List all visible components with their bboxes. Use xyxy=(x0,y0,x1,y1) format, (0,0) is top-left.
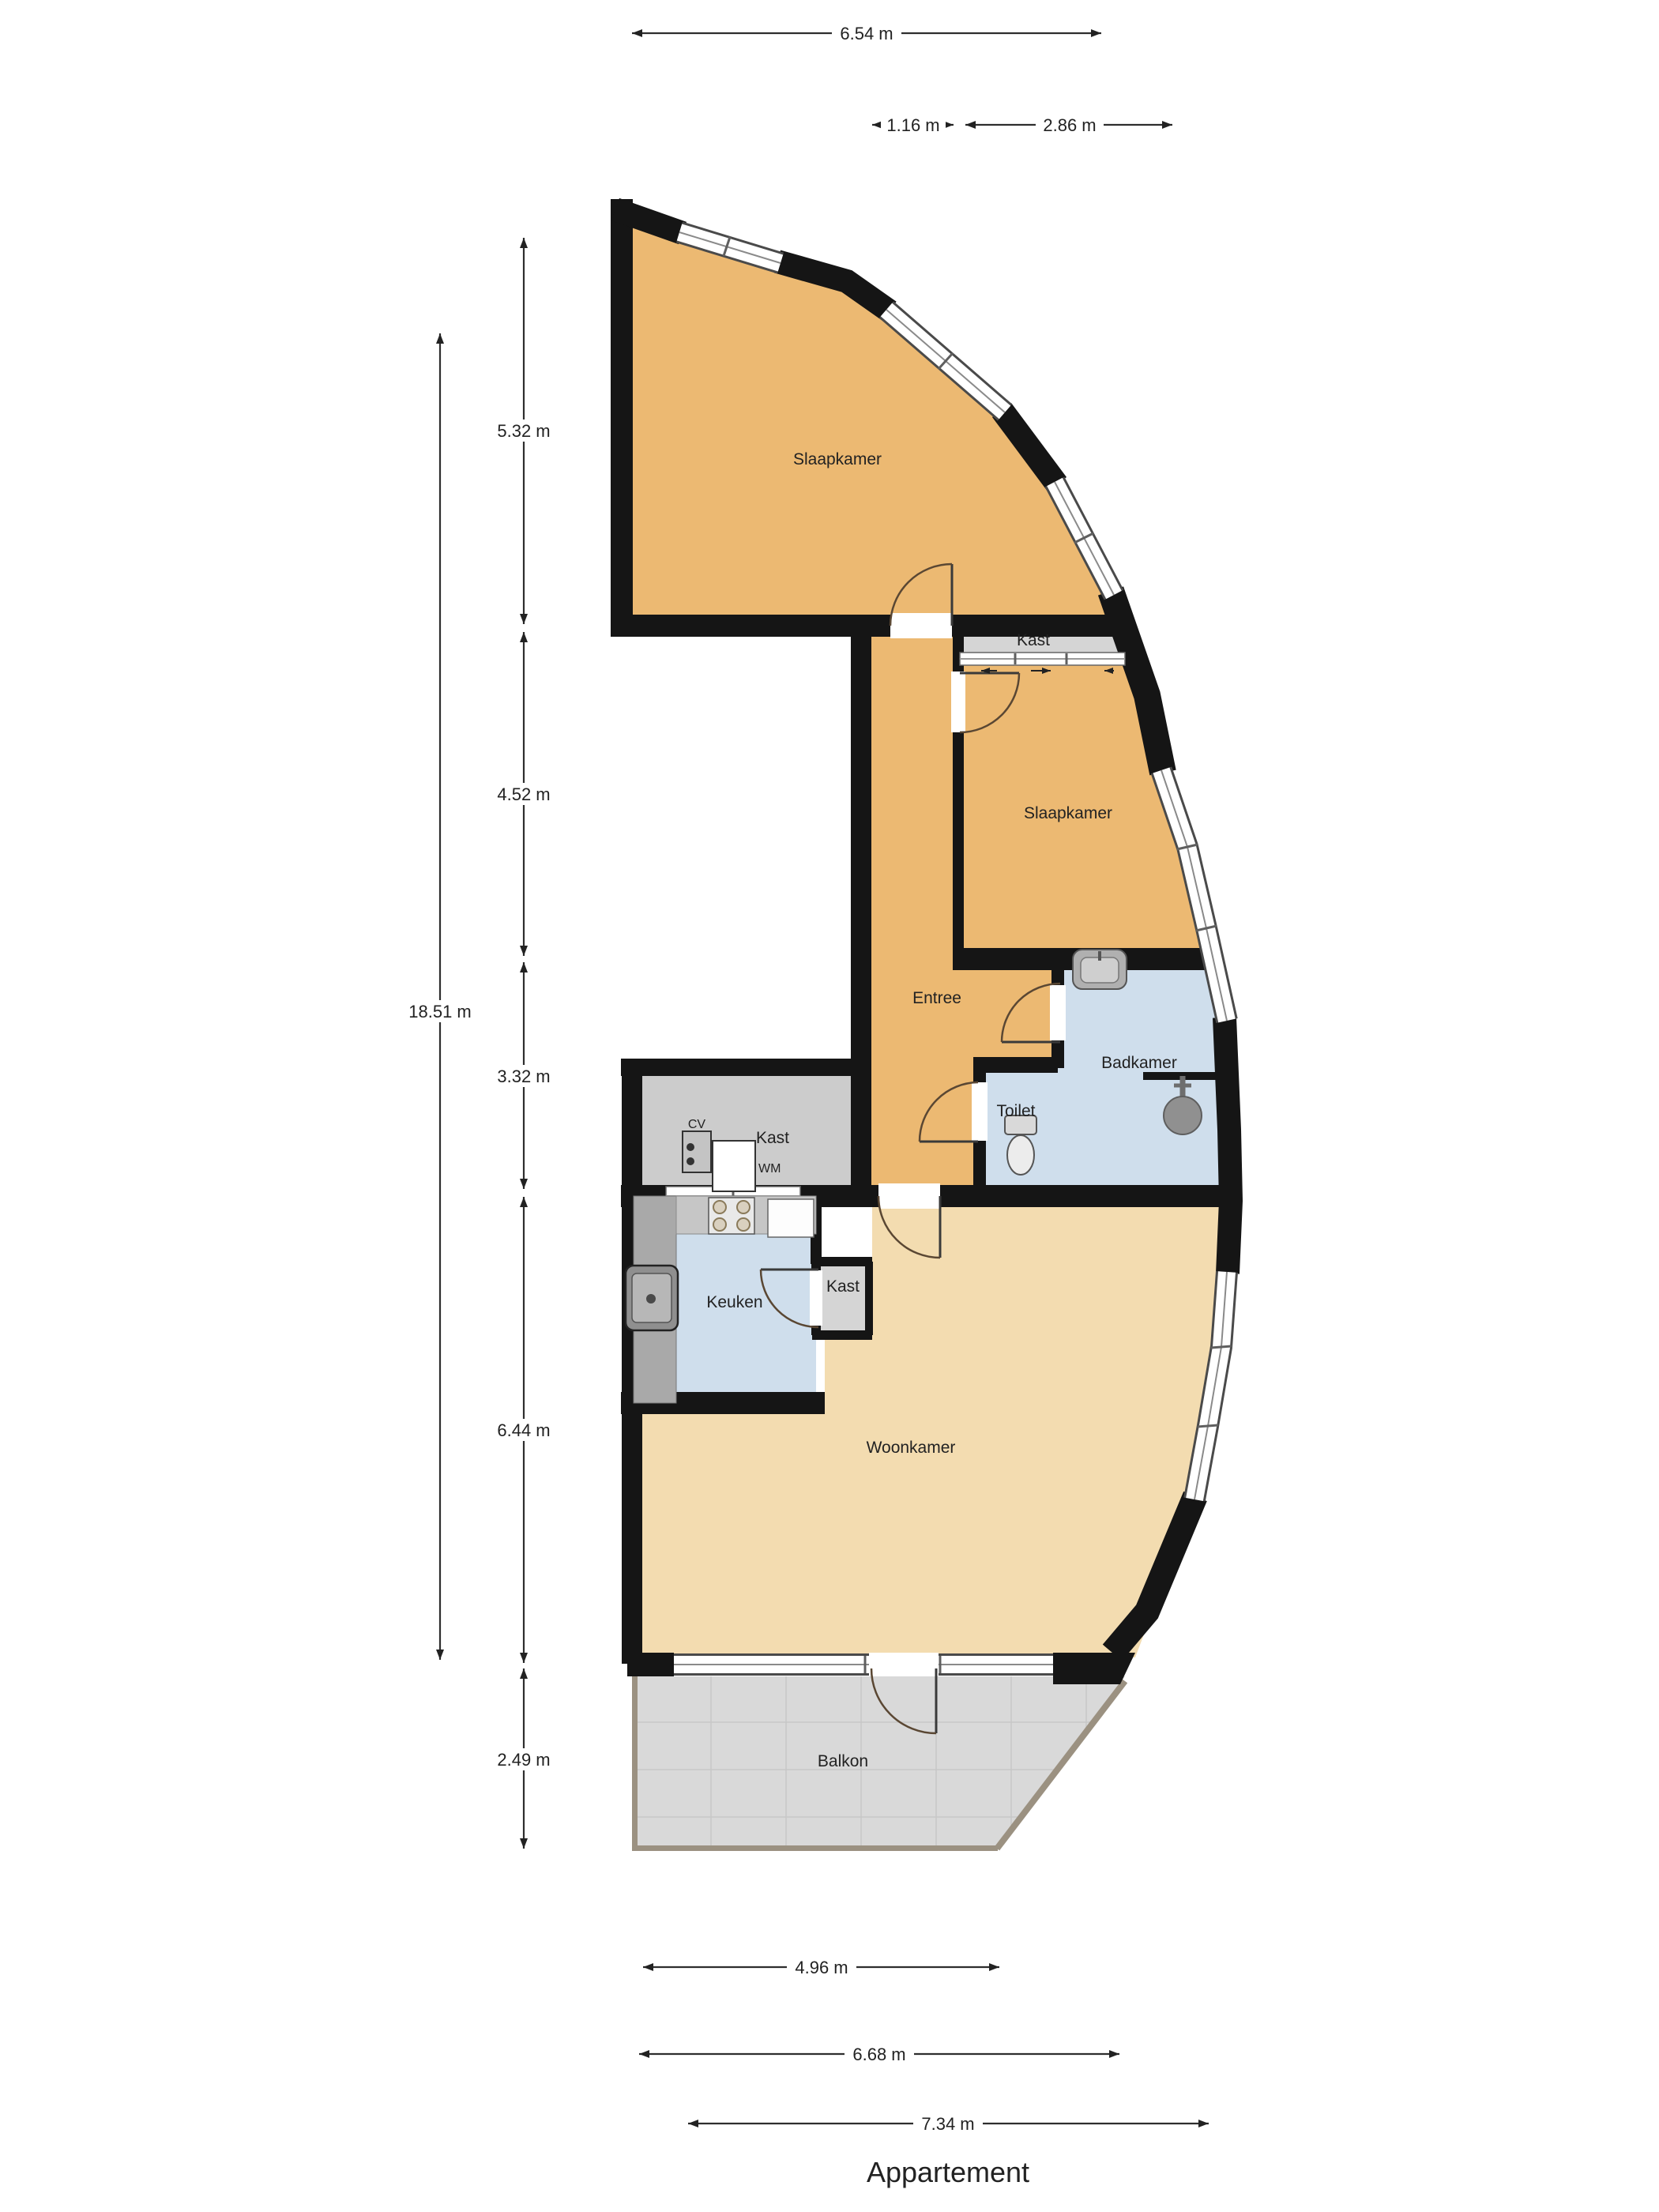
kitchen-sink xyxy=(626,1266,678,1330)
dim-top-width: 6.54 m xyxy=(840,24,893,43)
dim-balkon-height: 2.49 m xyxy=(497,1750,550,1770)
dim-bottom-width: 7.34 m xyxy=(921,2114,974,2134)
stove xyxy=(709,1198,754,1234)
dim-bedroom1-height: 5.32 m xyxy=(497,421,550,441)
label-kast-keuken: Kast xyxy=(826,1277,860,1296)
bathroom-sink xyxy=(1073,950,1127,989)
label-kast-utility: Kast xyxy=(756,1129,789,1147)
label-toilet: Toilet xyxy=(996,1102,1035,1120)
page-title: Appartement xyxy=(867,2156,1029,2188)
floor-plan: 6.54 m 1.16 m 2.86 m 18.51 m 5.32 m 4.52… xyxy=(0,0,1659,2212)
dim-balkon-width: 4.96 m xyxy=(795,1958,848,1977)
label-woonkamer: Woonkamer xyxy=(867,1439,956,1457)
balcony-rail-bottom xyxy=(634,1845,998,1851)
label-entree: Entree xyxy=(912,989,961,1007)
dim-woonkamer-height: 6.44 m xyxy=(497,1420,550,1440)
window-balcony-band xyxy=(674,1656,1053,1673)
dim-woonkamer-width: 6.68 m xyxy=(852,2045,905,2064)
washing-machine xyxy=(713,1141,755,1191)
room-kast-keuken-floor xyxy=(816,1262,869,1335)
wall-segment xyxy=(1224,1018,1231,1273)
dim-bedroom2-width: 2.86 m xyxy=(1043,115,1096,135)
balcony-rail-left xyxy=(632,1676,638,1851)
dim-hall-height: 3.32 m xyxy=(497,1066,550,1086)
toilet-fixture xyxy=(1005,1115,1036,1175)
dim-bedroom2-height: 4.52 m xyxy=(497,784,550,804)
kitchen-appliance xyxy=(768,1199,814,1237)
label-slaapkamer2: Slaapkamer xyxy=(1024,804,1112,822)
dim-total-height: 18.51 m xyxy=(408,1002,472,1021)
wall-corner-block xyxy=(1053,1653,1135,1684)
label-cv: CV xyxy=(688,1118,706,1131)
label-badkamer: Badkamer xyxy=(1101,1054,1177,1072)
label-balkon: Balkon xyxy=(818,1752,868,1770)
label-wm: WM xyxy=(758,1162,781,1176)
dim-hall-width: 1.16 m xyxy=(886,115,939,135)
cv-boiler xyxy=(683,1131,711,1172)
label-slaapkamer1: Slaapkamer xyxy=(793,450,882,468)
label-kast-top: Kast xyxy=(1017,631,1050,649)
label-keuken: Keuken xyxy=(706,1293,762,1311)
room-slaapkamer1-floor xyxy=(623,213,1125,626)
